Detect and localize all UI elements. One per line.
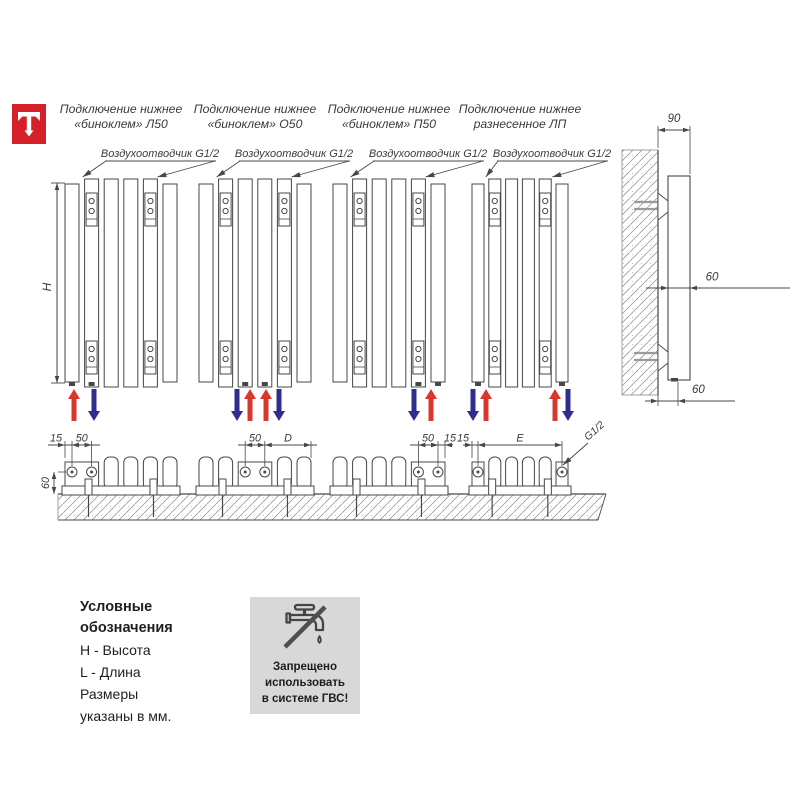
side-dim-label: 90 [668,113,681,125]
legend-item: указаны в мм. [80,705,210,727]
dim-label: D [284,433,292,445]
air-vent-label-2: Воздухоотводчик G1/2 [215,148,353,180]
connection-title-2: Подключение нижнее«биноклем» О50 [194,102,317,131]
air-vent-label-1: Воздухоотводчик G1/2 [81,148,219,180]
height-dim-label: H [40,282,54,291]
floor-slab [58,494,606,520]
air-vent-label-3: Воздухоотводчик G1/2 [349,148,487,180]
dim-label: 50 [76,433,88,445]
connection-title-4: Подключение нижнееразнесенное ЛП [459,102,582,131]
connection-title-line2: «биноклем» Л50 [74,117,168,131]
air-vent-label: Воздухоотводчик G1/2 [101,148,219,160]
air-vent-label: Воздухоотводчик G1/2 [235,148,353,160]
flow-arrow-supply [480,389,492,421]
air-vent-label-4: Воздухоотводчик G1/2 [484,148,611,179]
radiator-front-view-3 [333,179,445,387]
flow-arrow-supply [68,389,80,421]
side-dim-label: 60 [706,272,719,284]
dim-label: 50 [249,433,261,445]
flow-arrow-supply [425,389,437,421]
flow-arrow-return [467,389,479,421]
connection-title-3: Подключение нижнее«биноклем» П50 [328,102,451,131]
legend-title-line: обозначения [80,618,210,639]
connection-title-line1: Подключение нижнее [328,102,451,116]
radiator-front-view-2 [199,179,311,387]
warning-text-line: использовать [250,675,360,691]
legend-item: L - Длина [80,661,210,683]
bottom-dimensions-1: 1550 [48,433,100,467]
page: { "brand": { "logo_color": "#d52029" }, … [0,0,800,800]
flow-arrow-return [273,389,285,421]
flow-arrows-3 [408,389,437,421]
thread-dim-label: G1/2 [582,419,607,443]
flow-arrow-supply [549,389,561,421]
dim-label: E [516,433,524,445]
wall-section [622,150,658,395]
radiator-front-view-4 [472,179,568,387]
dim-label: 15 [50,433,63,445]
connection-title-line1: Подключение нижнее [60,102,183,116]
bottom-dimensions-3: 5015 [410,433,457,467]
flow-arrow-return [562,389,574,421]
side-dim-90: 90 [658,113,690,174]
installation-diagram: Подключение нижнее«биноклем» Л50Воздухоо… [0,0,800,560]
flow-arrow-supply [244,389,256,421]
side-view: 906060 [622,113,790,406]
connection-title-line1: Подключение нижнее [194,102,317,116]
legend-item: Размеры [80,683,210,705]
flow-arrows-1 [68,389,100,421]
dim-label: 50 [422,433,434,445]
warning-text-line: в системе ГВС! [250,691,360,707]
flow-arrow-return [231,389,243,421]
no-hot-water-icon [278,600,332,654]
flow-arrow-supply [260,389,272,421]
legend-title-line: Условные [80,597,210,618]
air-vent-label: Воздухоотводчик G1/2 [369,148,487,160]
warning-text-line: Запрещено [250,659,360,675]
floor-height-dim-label: 60 [40,477,52,489]
connection-title-line2: разнесенное ЛП [473,117,567,131]
legend: Условные обозначения H - Высота L - Длин… [80,597,210,727]
warning-box: Запрещено использовать в системе ГВС! [250,597,360,714]
connection-title-line2: «биноклем» П50 [342,117,436,131]
dim-label: 15 [444,433,457,445]
flow-arrows-2 [231,389,285,421]
thread-dimension: G1/2 [561,419,607,467]
flow-arrows-4 [467,389,574,421]
flow-arrow-return [408,389,420,421]
side-dim-label: 60 [692,384,705,396]
radiator-front-view-1 [65,179,177,387]
dim-label: 15 [457,433,470,445]
connection-title-1: Подключение нижнее«биноклем» Л50 [60,102,183,131]
height-dimension: H [40,183,65,383]
legend-item: H - Высота [80,639,210,661]
connection-title-line2: «биноклем» О50 [208,117,303,131]
flow-arrow-return [88,389,100,421]
air-vent-label: Воздухоотводчик G1/2 [493,148,611,160]
connection-title-line1: Подключение нижнее [459,102,582,116]
